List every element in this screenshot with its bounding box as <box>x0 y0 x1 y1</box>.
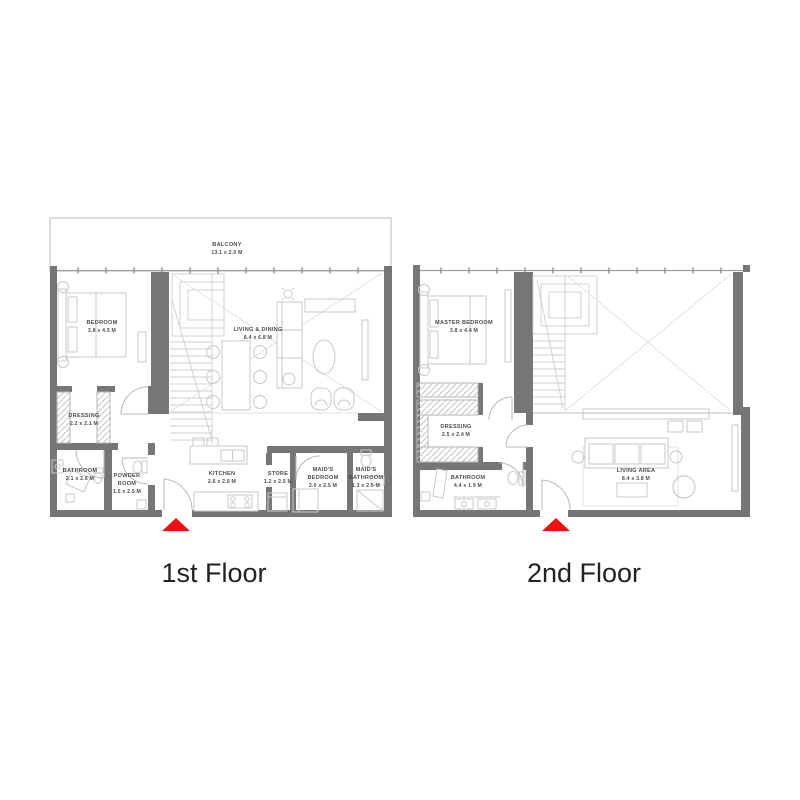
label-dressing: DRESSING <box>440 424 471 430</box>
window-wall <box>413 268 750 274</box>
label-maids-bathroom: MAID'S <box>356 467 377 473</box>
staircase <box>170 274 224 443</box>
svg-text:4.4 x 1.9 M: 4.4 x 1.9 M <box>454 483 482 489</box>
label-bathroom: BATHROOM <box>451 475 486 481</box>
living-area-furniture <box>572 409 738 506</box>
svg-text:3.8 x 4.5 M: 3.8 x 4.5 M <box>88 328 116 334</box>
floor-title-2nd: 2nd Floor <box>527 558 641 588</box>
svg-text:2.1 x 2.6 M: 2.1 x 2.6 M <box>66 476 94 482</box>
floorplan-page: BALCONY 13.1 x 2.0 M BEDROOM 3.8 x 4.5 M… <box>0 0 800 800</box>
svg-text:8.4 x 6.8 M: 8.4 x 6.8 M <box>244 335 272 341</box>
label-store: STORE <box>268 471 288 477</box>
floorplan-svg: BALCONY 13.1 x 2.0 M BEDROOM 3.8 x 4.5 M… <box>0 0 800 800</box>
label-dressing: DRESSING <box>68 413 99 419</box>
label-living-dining: LIVING & DINING <box>233 327 282 333</box>
label-living-area: LIVING AREA <box>617 468 656 474</box>
svg-text:8.4 x 3.8 M: 8.4 x 3.8 M <box>622 476 650 482</box>
void-cross-lines <box>169 273 382 413</box>
svg-text:BATHROOM: BATHROOM <box>349 475 384 481</box>
svg-text:2.2 x 2.1 M: 2.2 x 2.1 M <box>70 421 98 427</box>
label-master-bedroom: MASTER BEDROOM <box>435 320 493 326</box>
svg-text:2.6 x 2.6 M: 2.6 x 2.6 M <box>208 479 236 485</box>
label-powder-room: POWDER <box>114 473 141 479</box>
svg-text:ROOM: ROOM <box>118 481 136 487</box>
floor-plan-1st: BALCONY 13.1 x 2.0 M BEDROOM 3.8 x 4.5 M… <box>50 218 392 588</box>
svg-text:2.0 x 2.5 M: 2.0 x 2.5 M <box>309 483 337 489</box>
svg-text:13.1 x 2.0 M: 13.1 x 2.0 M <box>211 250 242 256</box>
dressing-wardrobes <box>417 383 478 462</box>
void-cross-lines <box>533 274 733 413</box>
svg-text:1.5 x 2.5 M: 1.5 x 2.5 M <box>113 489 141 495</box>
svg-text:2.5 x 2.4 M: 2.5 x 2.4 M <box>442 432 470 438</box>
floor-plan-2nd: MASTER BEDROOM 3.8 x 4.4 M DRESSING 2.5 … <box>413 265 750 588</box>
svg-text:BEDROOM: BEDROOM <box>308 475 339 481</box>
svg-text:1.3 x 2.5 M: 1.3 x 2.5 M <box>352 483 380 489</box>
label-kitchen: KITCHEN <box>209 471 236 477</box>
staircase <box>533 276 597 410</box>
svg-text:3.8 x 4.4 M: 3.8 x 4.4 M <box>450 328 478 334</box>
maids-bedroom-furniture <box>293 489 318 512</box>
floor-title-1st: 1st Floor <box>161 558 266 588</box>
svg-text:1.2 x 2.5 M: 1.2 x 2.5 M <box>264 479 292 485</box>
label-maids-bedroom: MAID'S <box>313 467 334 473</box>
entry-arrow-icon <box>542 518 570 531</box>
label-bedroom: BEDROOM <box>87 320 118 326</box>
entry-arrow-icon <box>162 518 190 531</box>
label-balcony: BALCONY <box>212 242 241 248</box>
living-dining-furniture <box>207 288 369 410</box>
label-bathroom: BATHROOM <box>63 468 98 474</box>
